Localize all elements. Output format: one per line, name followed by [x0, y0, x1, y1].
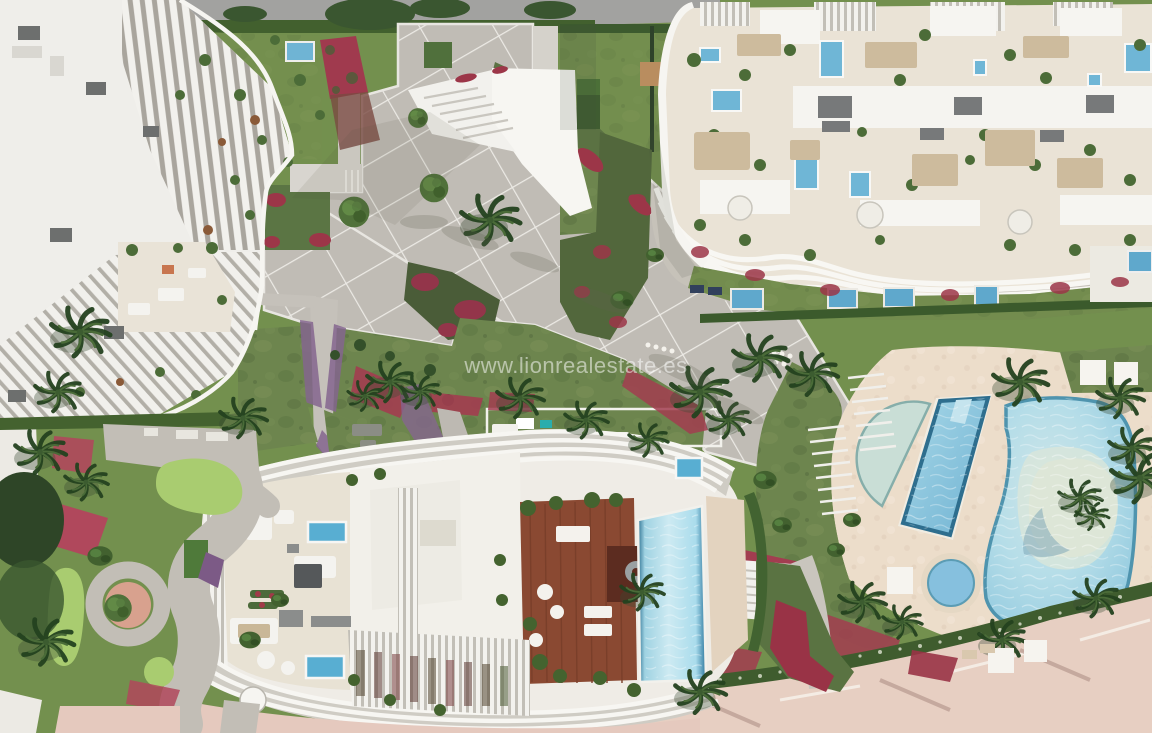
svg-text:www.lionrealestate.es: www.lionrealestate.es — [463, 353, 687, 378]
